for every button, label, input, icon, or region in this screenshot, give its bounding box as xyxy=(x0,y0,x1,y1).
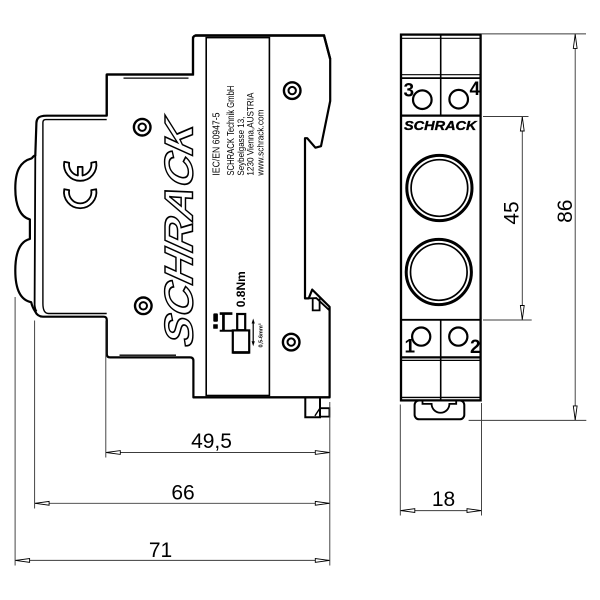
svg-text:71: 71 xyxy=(149,539,172,562)
svg-text:45: 45 xyxy=(501,201,524,224)
svg-text:0,5-6mm²: 0,5-6mm² xyxy=(258,323,265,347)
svg-text:IEC/EN 60947-5: IEC/EN 60947-5 xyxy=(212,112,223,175)
svg-text:0.8Nm: 0.8Nm xyxy=(234,271,248,307)
svg-text:www.schrack.com: www.schrack.com xyxy=(255,110,265,177)
svg-text:18: 18 xyxy=(432,488,455,511)
svg-text:49,5: 49,5 xyxy=(191,430,232,453)
svg-text:1: 1 xyxy=(405,337,416,358)
svg-text:3: 3 xyxy=(404,81,415,102)
svg-text:SCHRACK: SCHRACK xyxy=(156,113,201,350)
svg-text:SCHRACK: SCHRACK xyxy=(404,118,478,133)
svg-text:66: 66 xyxy=(171,482,194,505)
svg-text:4: 4 xyxy=(470,79,481,100)
svg-text:2: 2 xyxy=(470,337,481,358)
svg-text:86: 86 xyxy=(554,200,577,223)
